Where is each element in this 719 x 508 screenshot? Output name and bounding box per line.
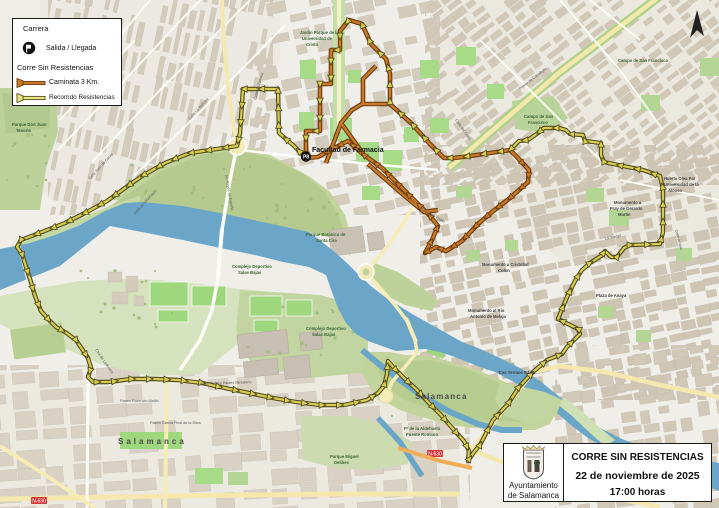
svg-text:Tras Yermos Edisa: Tras Yermos Edisa [498,370,536,375]
svg-text:Salas Bajas: Salas Bajas [312,332,336,337]
svg-text:Paseo García Real de la Silva: Paseo García Real de la Silva [150,421,202,425]
svg-text:Delibes: Delibes [334,460,350,465]
svg-text:Fray de Gerardo: Fray de Gerardo [610,206,643,211]
svg-text:Huerta Olea Par: Huerta Olea Par [664,176,696,181]
svg-text:Monumento al Rio: Monumento al Rio [468,308,505,313]
svg-text:Alcoso: Alcoso [668,188,682,193]
svg-text:Colon: Colon [498,268,510,273]
svg-text:Universidad de: Universidad de [302,36,333,41]
svg-text:Plaza de Anaya: Plaza de Anaya [596,293,627,298]
svg-text:Cristo: Cristo [306,42,319,47]
svg-text:Paseo Florencio Maíllo: Paseo Florencio Maíllo [120,399,159,403]
svg-text:Salamanca: Salamanca [415,392,468,401]
svg-text:Salamanca: Salamanca [118,437,187,446]
svg-text:Francisco: Francisco [528,120,548,125]
svg-text:Pº de la Aldehuela: Pº de la Aldehuela [404,426,441,431]
svg-text:Parque Miguel: Parque Miguel [330,454,359,459]
svg-text:Complejo Deportivo: Complejo Deportivo [232,264,272,269]
svg-text:Facultad de Farmacia: Facultad de Farmacia [312,147,384,154]
svg-text:Parque Botánico de: Parque Botánico de [306,232,346,237]
svg-text:Monumento a Cristobal: Monumento a Cristobal [482,262,529,267]
svg-text:Campo de San Francisco: Campo de San Francisco [618,58,668,63]
svg-text:Puente Romano: Puente Romano [406,432,438,437]
svg-text:Salas Bajas: Salas Bajas [238,270,262,275]
svg-text:Campo de San: Campo de San [524,114,554,119]
svg-text:Tenorio: Tenorio [16,128,31,133]
svg-text:Martin: Martin [618,212,631,217]
svg-text:Complejo Deportivo: Complejo Deportivo [306,326,346,331]
svg-text:Jardín Parque de la: Jardín Parque de la [300,30,339,35]
svg-text:N-630: N-630 [32,499,46,505]
svg-text:Monumento a: Monumento a [614,200,642,205]
svg-text:Santa Cira: Santa Cira [316,238,337,243]
svg-text:P8: P8 [303,155,309,161]
svg-text:Parque Don Juan: Parque Don Juan [12,122,47,127]
svg-text:Universidad de la: Universidad de la [664,182,699,187]
svg-text:Antonio de Melaja: Antonio de Melaja [470,314,507,319]
